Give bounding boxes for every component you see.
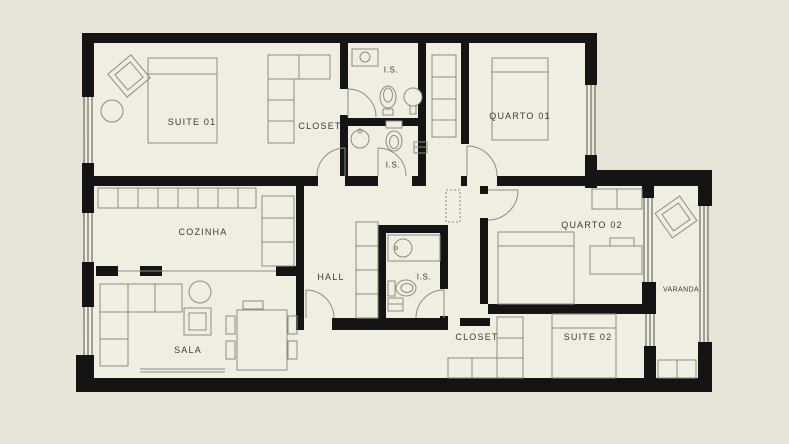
- toilet-icon: [388, 280, 416, 296]
- room-label-quarto-02: QUARTO 02: [561, 220, 623, 230]
- room-label-sala: SALA: [174, 345, 202, 355]
- toilet-icon: [386, 121, 402, 151]
- room-label-is-03: I.S.: [417, 273, 431, 282]
- floor-plan: SUITE 01 CLOSET I.S. I.S. QUARTO 01 COZI…: [0, 0, 789, 444]
- room-label-closet-02: CLOSET: [455, 332, 498, 342]
- room-label-suite-02: SUITE 02: [564, 332, 613, 342]
- room-label-is-02: I.S.: [386, 161, 400, 170]
- room-label-is-01: I.S.: [384, 66, 398, 75]
- sink-icon: [394, 239, 412, 257]
- room-label-hall: HALL: [317, 272, 344, 282]
- room-label-varanda: VARANDA: [663, 287, 699, 294]
- room-label-suite-01: SUITE 01: [168, 117, 217, 127]
- room-label-closet-01: CLOSET: [298, 121, 341, 131]
- room-label-cozinha: COZINHA: [179, 227, 228, 237]
- room-label-quarto-01: QUARTO 01: [489, 111, 551, 121]
